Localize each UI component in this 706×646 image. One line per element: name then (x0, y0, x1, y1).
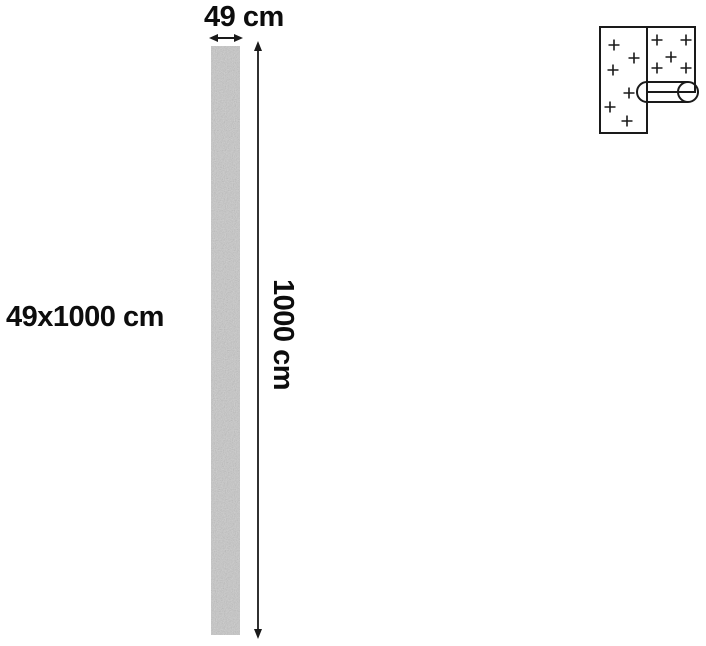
height-dimension-arrow (252, 41, 264, 639)
plus-marks-left (605, 40, 640, 127)
product-dimension-diagram: 49 cm 1000 cm (0, 0, 706, 646)
wallpaper-strip (211, 46, 240, 635)
plus-marks-right (652, 35, 692, 74)
wallpaper-roll-icon (597, 24, 700, 137)
width-dimension-arrow (209, 32, 243, 44)
height-label: 1000 cm (266, 279, 300, 390)
width-label: 49 cm (204, 2, 284, 32)
size-label: 49x1000 cm (6, 302, 164, 332)
